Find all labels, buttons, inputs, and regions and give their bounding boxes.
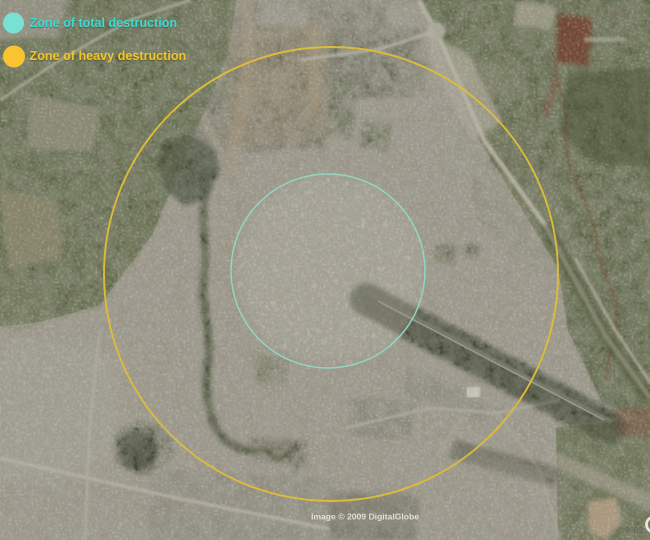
svg-text:© 2009: © 2009 (617, 526, 643, 535)
svg-text:Image © 2009 DigitalGlobe: Image © 2009 DigitalGlobe (311, 512, 419, 522)
